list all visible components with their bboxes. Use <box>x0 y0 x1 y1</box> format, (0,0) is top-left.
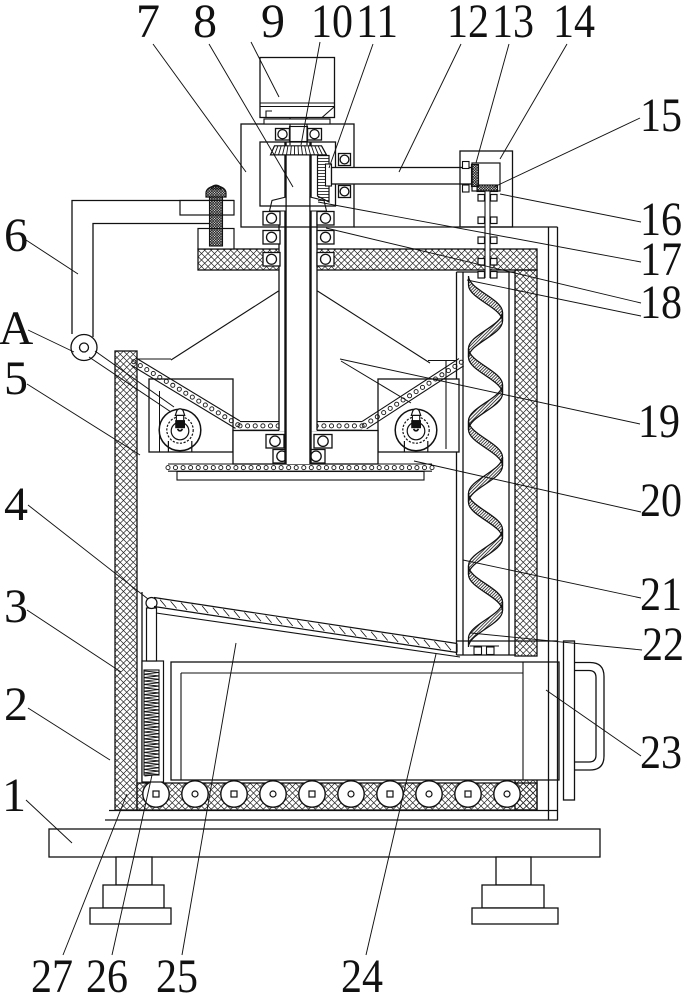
svg-text:A: A <box>0 302 34 355</box>
svg-text:8: 8 <box>193 0 217 48</box>
svg-text:12: 12 <box>447 0 489 48</box>
svg-text:20: 20 <box>640 474 682 527</box>
svg-text:2: 2 <box>4 678 28 731</box>
svg-text:19: 19 <box>638 395 680 448</box>
svg-text:10: 10 <box>311 0 353 48</box>
svg-text:18: 18 <box>640 276 682 329</box>
svg-text:11: 11 <box>356 0 398 48</box>
svg-text:3: 3 <box>4 580 28 633</box>
svg-text:26: 26 <box>86 950 128 1000</box>
svg-text:6: 6 <box>4 209 28 262</box>
svg-text:23: 23 <box>640 726 682 779</box>
svg-text:14: 14 <box>553 0 595 48</box>
svg-text:25: 25 <box>156 950 198 1000</box>
svg-text:4: 4 <box>4 478 28 531</box>
svg-text:15: 15 <box>640 89 682 142</box>
svg-text:13: 13 <box>492 0 534 48</box>
svg-text:9: 9 <box>261 0 285 48</box>
svg-text:22: 22 <box>642 618 684 671</box>
svg-text:1: 1 <box>2 769 26 822</box>
svg-text:7: 7 <box>136 0 160 48</box>
svg-text:21: 21 <box>640 568 682 621</box>
svg-text:5: 5 <box>4 352 28 405</box>
svg-text:24: 24 <box>341 950 383 1000</box>
svg-text:27: 27 <box>31 950 73 1000</box>
